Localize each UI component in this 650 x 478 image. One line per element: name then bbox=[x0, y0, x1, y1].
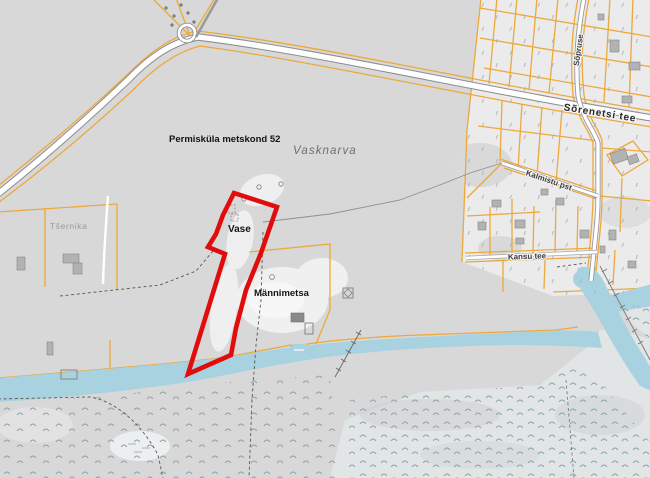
label-road-kansu: Kansu tee bbox=[508, 251, 547, 261]
map-image: Permisküla metskond 52 Vasknarva Vase Mä… bbox=[0, 0, 650, 478]
label-village-vasknarva: Vasknarva bbox=[293, 145, 357, 157]
vegetation-symbols-layer bbox=[462, 0, 650, 296]
label-place-tsernika: Tšernika bbox=[50, 221, 87, 231]
label-place-vase: Vase bbox=[228, 224, 251, 235]
label-place-mannimetsa: Männimetsa bbox=[254, 288, 310, 299]
label-forest-district: Permisküla metskond 52 bbox=[169, 134, 280, 145]
map-canvas[interactable]: Permisküla metskond 52 Vasknarva Vase Mä… bbox=[0, 0, 650, 478]
